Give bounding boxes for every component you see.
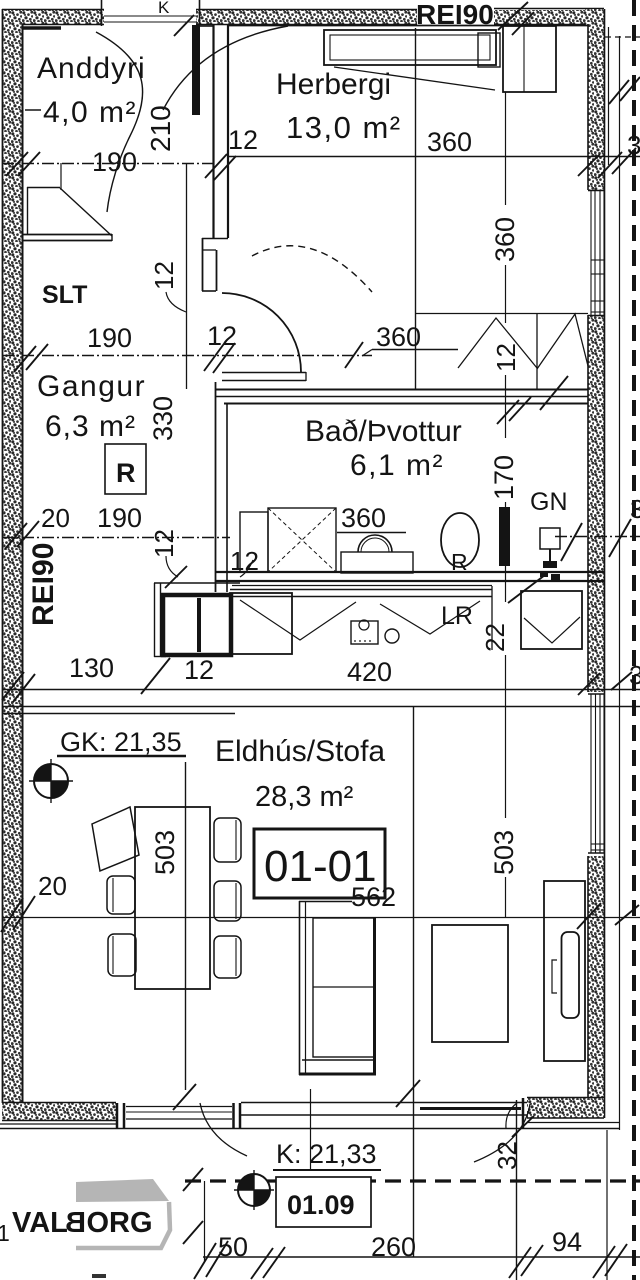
svg-text:12: 12 bbox=[184, 655, 214, 685]
svg-text:210: 210 bbox=[145, 105, 176, 152]
svg-text:260: 260 bbox=[371, 1232, 416, 1262]
svg-text:12: 12 bbox=[207, 321, 237, 351]
svg-text:28,3 m²: 28,3 m² bbox=[255, 781, 354, 813]
svg-text:6,1 m²: 6,1 m² bbox=[350, 449, 444, 482]
svg-text:Anddyri: Anddyri bbox=[37, 52, 146, 85]
svg-text:VAL: VAL bbox=[12, 1207, 68, 1239]
svg-text:LR: LR bbox=[441, 602, 473, 630]
svg-text:6,3 m²: 6,3 m² bbox=[45, 410, 136, 443]
svg-text:K: 21,33: K: 21,33 bbox=[276, 1139, 377, 1169]
svg-text:50: 50 bbox=[218, 1232, 248, 1262]
svg-text:20: 20 bbox=[38, 871, 67, 901]
svg-text:R: R bbox=[451, 549, 468, 575]
svg-text:170: 170 bbox=[489, 455, 519, 500]
svg-text:330: 330 bbox=[148, 396, 178, 441]
svg-text:R: R bbox=[116, 458, 136, 488]
svg-text:32: 32 bbox=[492, 1141, 522, 1170]
svg-text:3: 3 bbox=[629, 660, 640, 690]
svg-text:20: 20 bbox=[41, 503, 70, 533]
svg-text:13,0 m²: 13,0 m² bbox=[286, 110, 402, 145]
svg-text:360: 360 bbox=[427, 127, 472, 157]
svg-text:K: K bbox=[158, 0, 170, 17]
svg-text:190: 190 bbox=[92, 147, 137, 177]
svg-text:GK: 21,35: GK: 21,35 bbox=[60, 727, 182, 757]
svg-text:REI90: REI90 bbox=[27, 543, 60, 626]
svg-text:01.09: 01.09 bbox=[287, 1190, 355, 1220]
svg-text:562: 562 bbox=[351, 882, 396, 912]
svg-text:12: 12 bbox=[228, 125, 258, 155]
svg-text:360: 360 bbox=[376, 322, 421, 352]
svg-text:SLT: SLT bbox=[42, 281, 87, 309]
svg-text:130: 130 bbox=[69, 653, 114, 683]
svg-text:36: 36 bbox=[627, 130, 640, 160]
svg-text:12: 12 bbox=[149, 529, 179, 558]
svg-text:3: 3 bbox=[630, 494, 640, 524]
svg-text:190: 190 bbox=[87, 323, 132, 353]
svg-text:Bað/Þvottur: Bað/Þvottur bbox=[305, 415, 462, 448]
svg-text:4,0 m²: 4,0 m² bbox=[43, 96, 137, 129]
svg-text:1: 1 bbox=[0, 1220, 10, 1246]
svg-text:94: 94 bbox=[552, 1227, 582, 1257]
svg-text:420: 420 bbox=[347, 657, 392, 687]
svg-text:503: 503 bbox=[489, 830, 519, 875]
svg-text:190: 190 bbox=[97, 503, 142, 533]
svg-text:REI90: REI90 bbox=[416, 0, 494, 30]
svg-text:GN: GN bbox=[530, 488, 568, 516]
svg-text:12: 12 bbox=[230, 546, 259, 576]
svg-text:Gangur: Gangur bbox=[37, 370, 146, 403]
svg-text:12: 12 bbox=[149, 261, 179, 290]
svg-text:360: 360 bbox=[490, 217, 520, 262]
svg-text:22: 22 bbox=[480, 623, 510, 652]
svg-text:503: 503 bbox=[150, 830, 180, 875]
svg-text:360: 360 bbox=[341, 503, 386, 533]
svg-text:12: 12 bbox=[491, 343, 521, 372]
svg-text:B: B bbox=[65, 1207, 86, 1239]
svg-text:Herbergi: Herbergi bbox=[276, 68, 391, 101]
svg-text:Eldhús/Stofa: Eldhús/Stofa bbox=[215, 735, 385, 768]
svg-text:ORG: ORG bbox=[87, 1207, 153, 1239]
